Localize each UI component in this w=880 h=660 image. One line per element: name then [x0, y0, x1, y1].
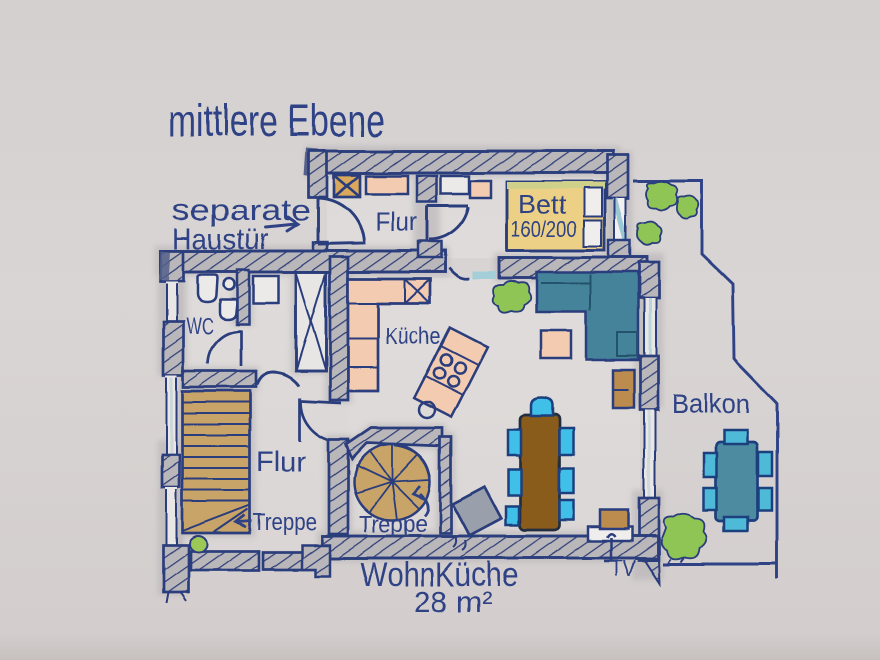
svg-text:Flur: Flur — [256, 446, 306, 478]
svg-text:Bett: Bett — [518, 189, 567, 219]
svg-text:TV: TV — [611, 555, 637, 581]
svg-text:Treppe: Treppe — [253, 509, 317, 536]
svg-text:Balkon: Balkon — [672, 388, 750, 419]
svg-text:Küche: Küche — [385, 323, 441, 350]
svg-text:Treppe: Treppe — [359, 511, 427, 538]
svg-text:160/200: 160/200 — [511, 216, 577, 241]
svg-text:WC: WC — [186, 313, 214, 339]
svg-text:Flur: Flur — [375, 207, 417, 237]
svg-text:28 m²: 28 m² — [414, 586, 492, 619]
svg-text:mittlere Ebene: mittlere Ebene — [168, 95, 385, 146]
